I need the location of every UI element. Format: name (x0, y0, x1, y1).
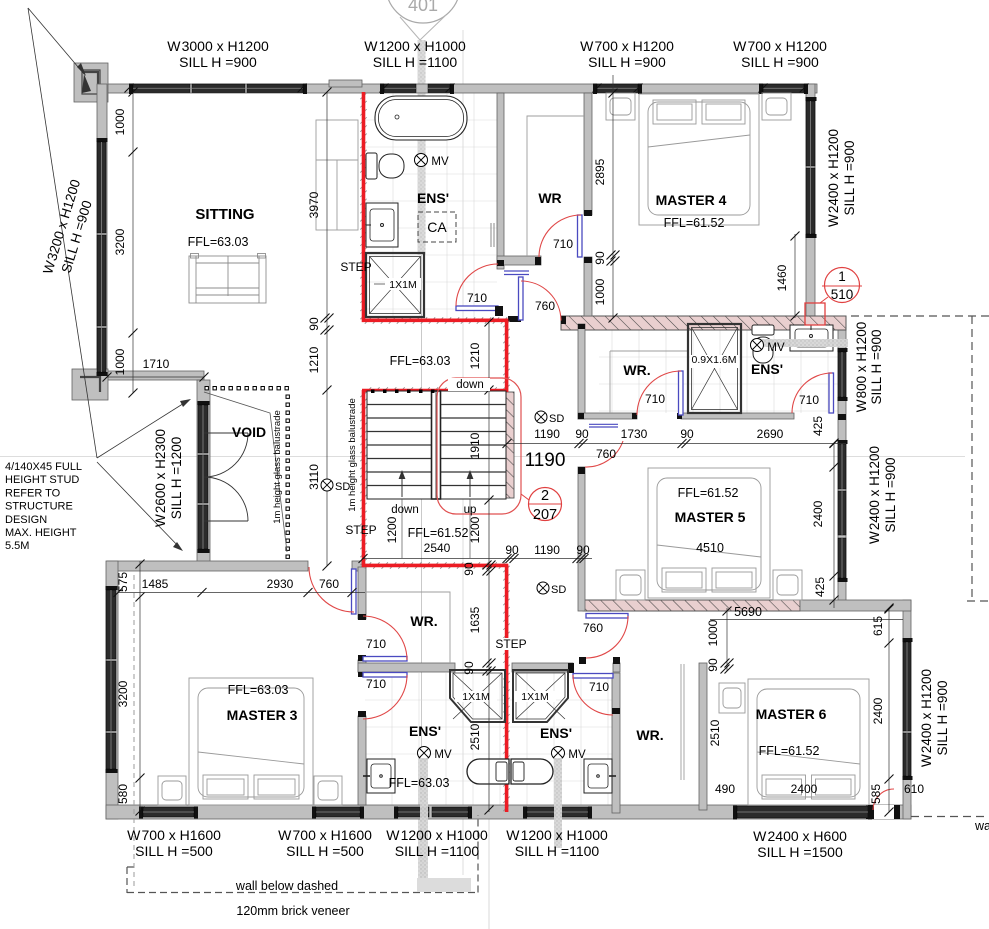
svg-text:585: 585 (869, 784, 883, 804)
svg-text:710: 710 (645, 392, 665, 406)
svg-text:WR.: WR. (623, 362, 650, 378)
svg-text:MASTER 6: MASTER 6 (756, 706, 827, 722)
svg-text:610: 610 (904, 782, 924, 796)
svg-text:4510: 4510 (696, 541, 724, 555)
svg-text:SILL H =900: SILL H =900 (588, 54, 666, 70)
svg-text:4/140X45 FULL: 4/140X45 FULL (5, 461, 82, 473)
svg-text:207: 207 (533, 507, 557, 523)
svg-text:1: 1 (838, 269, 846, 284)
svg-text:710: 710 (366, 677, 386, 691)
svg-text:SILL H =1100: SILL H =1100 (515, 843, 600, 859)
svg-text:1190: 1190 (534, 427, 560, 441)
svg-text:1m height glass balustrade: 1m height glass balustrade (272, 410, 283, 524)
svg-text:FFL=61.52: FFL=61.52 (408, 526, 469, 540)
svg-text:1X1M: 1X1M (521, 691, 548, 703)
svg-text:90: 90 (462, 562, 476, 576)
svg-text:710: 710 (553, 237, 573, 251)
svg-text:ENS': ENS' (409, 723, 441, 739)
svg-text:2690: 2690 (757, 427, 784, 441)
svg-text:SILL H =500: SILL H =500 (135, 843, 213, 859)
svg-text:2400: 2400 (791, 782, 818, 796)
svg-text:FFL=61.52: FFL=61.52 (759, 744, 820, 758)
svg-text:1190: 1190 (525, 450, 566, 471)
svg-text:MV: MV (568, 749, 586, 761)
svg-text:ENS': ENS' (417, 190, 449, 206)
svg-text:3970: 3970 (307, 191, 321, 218)
svg-text:SILL H =900: SILL H =900 (935, 681, 950, 756)
svg-text:SILL H =900: SILL H =900 (179, 54, 257, 70)
svg-text:3200: 3200 (113, 228, 127, 255)
svg-text:SILL H =900: SILL H =900 (869, 330, 884, 405)
svg-text:FFL=61.52: FFL=61.52 (678, 486, 739, 500)
svg-text:710: 710 (799, 393, 819, 407)
svg-text:1210: 1210 (307, 346, 321, 373)
svg-text:down: down (456, 379, 484, 391)
svg-text:1X1M: 1X1M (389, 279, 416, 291)
svg-text:425: 425 (813, 577, 827, 597)
svg-text:CA: CA (427, 219, 447, 235)
svg-text:760: 760 (583, 621, 603, 635)
svg-text:VOID: VOID (232, 424, 266, 440)
svg-text:wa: wa (974, 819, 989, 833)
svg-text:MASTER 3: MASTER 3 (227, 707, 298, 723)
svg-text:MASTER 4: MASTER 4 (656, 192, 727, 208)
svg-text:90: 90 (593, 251, 607, 265)
svg-text:1000: 1000 (706, 619, 720, 646)
svg-text:710: 710 (467, 291, 487, 305)
svg-text:WR.: WR. (636, 727, 663, 743)
svg-text:710: 710 (366, 637, 386, 651)
svg-text:90: 90 (505, 543, 519, 557)
svg-text:3110: 3110 (307, 464, 321, 490)
svg-text:ENS': ENS' (751, 361, 783, 377)
svg-text:90: 90 (575, 427, 589, 441)
svg-text:FFL=61.52: FFL=61.52 (664, 216, 725, 230)
svg-text:490: 490 (715, 782, 735, 796)
svg-text:MAX. HEIGHT: MAX. HEIGHT (5, 527, 77, 539)
svg-text:760: 760 (596, 447, 616, 461)
svg-text:2: 2 (541, 488, 549, 504)
svg-text:REFER TO: REFER TO (5, 487, 61, 499)
svg-text:1m height glass balustrade: 1m height glass balustrade (347, 398, 358, 512)
svg-text:SILL H =1100: SILL H =1100 (373, 54, 458, 70)
svg-text:580: 580 (116, 784, 130, 804)
svg-text:FFL=63.03: FFL=63.03 (228, 683, 289, 697)
svg-text:W 1200 x H1000: W 1200 x H1000 (506, 827, 608, 843)
svg-text:2510: 2510 (708, 719, 722, 746)
svg-text:SITTING: SITTING (195, 206, 254, 223)
svg-text:1460: 1460 (775, 264, 789, 291)
svg-text:2540: 2540 (424, 541, 451, 555)
svg-text:SD: SD (549, 413, 564, 425)
svg-text:2930: 2930 (267, 577, 294, 591)
svg-text:W 2400 x H1200: W 2400 x H1200 (867, 446, 882, 544)
svg-text:STEP: STEP (340, 260, 371, 274)
svg-text:5690: 5690 (734, 605, 762, 619)
svg-text:0.9X1.6M: 0.9X1.6M (692, 354, 737, 366)
svg-text:W 1200 x H1000: W 1200 x H1000 (364, 38, 466, 54)
svg-text:W 1200 x H1000: W 1200 x H1000 (386, 827, 488, 843)
svg-text:2400: 2400 (871, 697, 885, 724)
svg-text:90: 90 (462, 661, 476, 675)
svg-text:2510: 2510 (468, 723, 482, 750)
svg-text:401: 401 (408, 0, 438, 15)
svg-text:1200: 1200 (468, 516, 482, 543)
svg-text:SILL H =900: SILL H =900 (883, 458, 898, 533)
svg-text:W 2600 x H2300: W 2600 x H2300 (153, 429, 168, 527)
svg-text:W 2400 x H1200: W 2400 x H1200 (826, 129, 841, 227)
svg-text:1485: 1485 (142, 577, 169, 591)
svg-text:1710: 1710 (143, 357, 170, 371)
svg-text:W 800 x H1200: W 800 x H1200 (854, 322, 869, 412)
svg-text:575: 575 (116, 572, 130, 592)
svg-text:FFL=63.03: FFL=63.03 (390, 354, 451, 368)
svg-text:SILL H =900: SILL H =900 (741, 54, 819, 70)
svg-text:1000: 1000 (113, 348, 127, 375)
svg-text:up: up (464, 504, 477, 516)
svg-text:510: 510 (831, 287, 854, 302)
svg-text:90: 90 (680, 427, 694, 441)
svg-text:MV: MV (767, 342, 785, 354)
svg-text:1000: 1000 (593, 278, 607, 305)
svg-text:5.5M: 5.5M (5, 540, 29, 552)
svg-text:1200: 1200 (385, 516, 399, 543)
svg-text:SD: SD (551, 584, 566, 596)
svg-text:2895: 2895 (593, 158, 607, 185)
svg-text:STRUCTURE: STRUCTURE (5, 501, 73, 513)
svg-text:W 700 x H1200: W 700 x H1200 (733, 38, 827, 54)
svg-text:down: down (391, 504, 419, 516)
svg-text:MASTER 5: MASTER 5 (675, 509, 746, 525)
svg-text:1X1M: 1X1M (462, 691, 489, 703)
svg-text:wall below dashed: wall below dashed (235, 879, 338, 893)
svg-text:HEIGHT STUD: HEIGHT STUD (5, 474, 79, 486)
svg-text:MV: MV (434, 749, 452, 761)
svg-text:90: 90 (576, 543, 590, 557)
svg-text:1190: 1190 (534, 543, 560, 557)
svg-text:DESIGN: DESIGN (5, 514, 47, 526)
svg-text:WR.: WR. (410, 613, 437, 629)
svg-text:W 700 x H1200: W 700 x H1200 (580, 38, 674, 54)
svg-text:W 700 x H1600: W 700 x H1600 (127, 827, 221, 843)
svg-text:1210: 1210 (468, 342, 482, 369)
svg-text:120mm brick veneer: 120mm brick veneer (236, 904, 349, 918)
svg-text:MV: MV (431, 156, 449, 168)
svg-text:710: 710 (589, 680, 609, 694)
svg-text:615: 615 (871, 616, 885, 636)
svg-text:1910: 1910 (468, 432, 482, 459)
svg-text:STEP: STEP (495, 637, 526, 651)
svg-text:90: 90 (307, 317, 321, 331)
svg-text:1000: 1000 (113, 108, 127, 135)
svg-text:SILL H =1100: SILL H =1100 (395, 843, 480, 859)
svg-text:760: 760 (319, 577, 339, 591)
svg-text:W 2400 x H600: W 2400 x H600 (753, 828, 847, 844)
svg-text:1730: 1730 (621, 427, 648, 441)
svg-text:STEP: STEP (345, 523, 376, 537)
svg-text:ENS': ENS' (540, 725, 572, 741)
svg-text:W 2400 x H1200: W 2400 x H1200 (919, 669, 934, 767)
svg-text:WR: WR (538, 190, 561, 206)
svg-text:760: 760 (535, 299, 555, 313)
svg-text:SILL H =500: SILL H =500 (286, 843, 364, 859)
svg-text:SILL H =900: SILL H =900 (842, 141, 857, 216)
svg-text:3200: 3200 (116, 680, 130, 707)
svg-text:2400: 2400 (811, 500, 825, 527)
svg-text:SILL H =1500: SILL H =1500 (757, 844, 843, 860)
svg-text:FFL=63.03: FFL=63.03 (188, 235, 249, 249)
svg-text:W 700 x H1600: W 700 x H1600 (278, 827, 372, 843)
svg-text:W 3000 x H1200: W 3000 x H1200 (167, 38, 269, 54)
svg-text:FFL=63.03: FFL=63.03 (389, 776, 450, 790)
svg-text:90: 90 (706, 658, 720, 672)
svg-text:1635: 1635 (468, 606, 482, 633)
svg-text:SILL H =1200: SILL H =1200 (169, 437, 184, 519)
svg-text:425: 425 (811, 416, 825, 436)
